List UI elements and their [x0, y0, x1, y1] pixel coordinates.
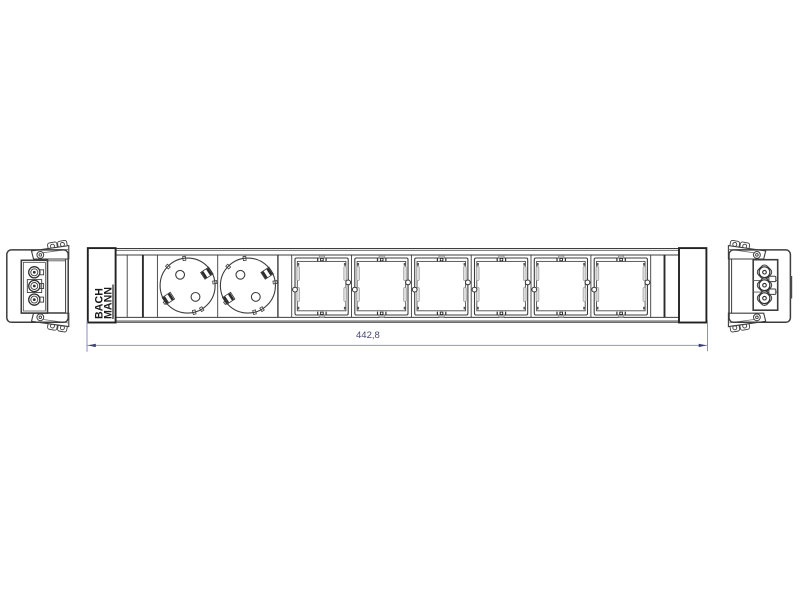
svg-text:442,8: 442,8	[356, 330, 380, 341]
